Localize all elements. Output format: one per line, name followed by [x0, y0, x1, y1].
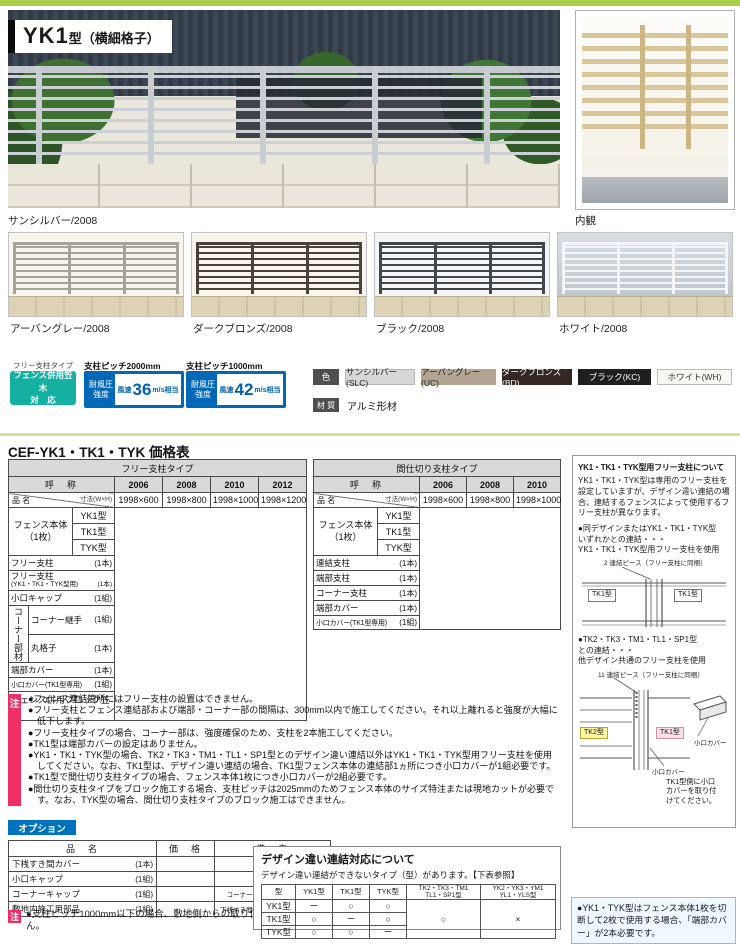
product-title: YK1型（横細格子） — [8, 20, 172, 53]
options-badge: オプション — [8, 820, 76, 835]
model-row-tyk: TYK型 — [73, 540, 115, 556]
option-row-corner-cap: コーナーキャップ(1組) — [9, 887, 157, 902]
design-subtitle: デザイン違い連結ができないタイプ（型）があります。【下表参照】 — [261, 869, 553, 881]
design-compatibility-panel: デザイン違い連結対応について デザイン違い連結ができないタイプ（型）があります。… — [253, 846, 561, 930]
hero-block-wall — [8, 164, 560, 208]
option-price-cell — [157, 857, 215, 872]
note-item: ●フェンス連結箇所にはフリー支柱の設置はできません。 — [28, 694, 560, 705]
hero-fence-top-rail — [8, 66, 560, 73]
wind-strength-label: 耐風圧 強度 — [189, 374, 217, 405]
kasagi-support-badge: フェンス併用笠木 対 応 — [10, 371, 76, 405]
row-free-post: フリー支柱(1本) — [9, 556, 115, 571]
design-cell: ○ — [333, 926, 370, 939]
note-item: ●フリー支柱タイプの場合、コーナー部は、強度確保のため、支柱を2本施工してくださ… — [28, 728, 560, 739]
partition-post-price-table: 間仕切り支柱タイプ 呼 称 2006 2008 2010 寸法(W×H) 品 名… — [313, 459, 561, 630]
design-row-label: TYK型 — [262, 926, 296, 939]
item-name: コーナー継手 — [31, 614, 82, 626]
price-empty-area — [420, 508, 561, 630]
diagram1-callout: 2 連結ピース（フリー支柱に同梱） — [604, 557, 707, 567]
note-item: ●TK1型は端部カバーの設定はありません。 — [28, 739, 560, 750]
sidebar-bullet-other-design: ●TK2・TK3・TM1・TL1・SP1型 との連結・・・ 他デザイン共通のフリ… — [578, 635, 730, 666]
material-value: アルミ形材 — [347, 398, 397, 413]
design-title: デザイン違い連結対応について — [261, 851, 553, 867]
wind-strength-label: 耐風圧 強度 — [87, 374, 115, 405]
design-compatibility-table: 型 YK1型 TK1型 TYK型 TK2・TK3・TM1 TL1・SP1型 YK… — [261, 884, 556, 939]
item-name: 小口キャップ — [12, 873, 63, 885]
note-item: ●YK1・TK1・TYK型の場合、TK2・TK3・TM1・TL1・SP1型とのデ… — [28, 750, 560, 772]
product-model-suffix: 型（横細格子） — [69, 28, 160, 47]
row-end-cover: 端部カバー(1本) — [314, 601, 420, 616]
diagonal-header-cell: 寸法(W×H) 品 名 — [9, 493, 115, 508]
item-qty: (1組) — [135, 889, 153, 900]
interior-fence-slats — [582, 33, 728, 137]
wind-unit: m/s相当 — [254, 385, 280, 395]
color-chip-sun-silver: サンシルバー(SLC) — [345, 369, 415, 385]
year-header: 2006 — [115, 477, 163, 493]
sidebar-bullet-same-design: ●同デザインまたはYK1・TK1・TYK型 いずれかとの連結・・・ YK1・TK… — [578, 524, 730, 555]
wind-prefix: 風速 — [220, 385, 234, 395]
size-cell: 1998×600 — [420, 493, 467, 508]
material-row-label: 材 質 — [313, 398, 339, 412]
options-header-price: 価 格 — [157, 841, 215, 857]
free-post-info-panel: YK1・TK1・TYK型用フリー支柱について YK1・TK1・TYK型は専用のフ… — [572, 455, 736, 828]
design-header: TK1型 — [333, 885, 370, 900]
design-merged-ng: × — [481, 900, 556, 939]
diagram2-cover-label-right: 小口カバー — [694, 737, 727, 747]
design-cell: ○ — [333, 900, 370, 913]
item-qty: (1組) — [94, 679, 112, 690]
option-row-end-cap: 小口キャップ(1組) — [9, 872, 157, 887]
cut-use-footnote: ●YK1・TYK型はフェンス本体1枚を切断して2枚で使用する場合、「端部カバー」… — [571, 897, 736, 944]
diagram2-drawing — [578, 678, 730, 774]
option-price-cell — [157, 887, 215, 902]
year-header: 2010 — [514, 477, 561, 493]
wind-prefix: 風速 — [118, 385, 132, 395]
item-qty: (1組) — [94, 614, 112, 625]
hero-fence-rails — [8, 75, 560, 159]
size-cell: 1998×800 — [163, 493, 211, 508]
row-corner-post: コーナー支柱(1本) — [314, 586, 420, 601]
item-name: コーナーキャップ — [12, 888, 80, 900]
variant-photo — [8, 232, 184, 317]
free-post-price-table: フリー支柱タイプ 呼 称 2006 2008 2010 2012 寸法(W×H)… — [8, 459, 307, 721]
wind-unit: m/s相当 — [152, 385, 178, 395]
diagram1-label: 連結ピース（フリー支柱に同梱） — [609, 560, 706, 567]
design-header: 型 — [262, 885, 296, 900]
row-round-lattice: 丸格子(1本) — [29, 634, 115, 663]
color-chip-white: ホワイト(WH) — [657, 369, 732, 385]
variant-caption: ブラック/2008 — [376, 321, 444, 336]
design-cell: ○ — [370, 913, 407, 926]
variant-photo — [557, 232, 733, 317]
corner-parts-vertical-label: コーナー部材 — [9, 606, 29, 663]
interior-view-photo — [575, 10, 735, 210]
section-divider — [0, 433, 740, 436]
design-row-label: YK1型 — [262, 900, 296, 913]
model-row-tyk: TYK型 — [378, 540, 420, 556]
design-merged-ok: ○ — [407, 900, 481, 939]
notes-badge: 注 — [8, 694, 21, 710]
connection-diagram-2: 11 連結ピース（フリー支柱に同梱） TK2型 TK1型 小口カバー 小口カバー — [578, 669, 730, 811]
variant-black: ブラック/2008 — [374, 232, 550, 317]
wind-value: 36 — [133, 381, 152, 398]
price-section-title: CEF-YK1・TK1・TYK 価格表 — [8, 441, 190, 461]
fence-body-label: フェンス本体 （1枚） — [9, 508, 73, 556]
color-chip-dark-bronze: ダークブロンズ(BD) — [502, 369, 572, 385]
row-kuchi-cover: 小口カバー(TK1型専用)(1組) — [314, 616, 420, 630]
item-qty: (1本) — [399, 588, 417, 599]
model-row-tk1: TK1型 — [378, 524, 420, 540]
item-name: 下桟すき間カバー — [12, 858, 80, 870]
price-empty-area — [115, 508, 307, 721]
hero-fence-post — [36, 66, 42, 170]
note-item: ●フリー支柱とフェンス連結部および端部・コーナー部の間隔は、300mm以内で施工… — [28, 705, 560, 727]
variant-caption: ホワイト/2008 — [559, 321, 627, 336]
sidebar-body: YK1・TK1・TYK型は専用のフリー支柱を設定していますが、デザイン違い連結の… — [578, 476, 730, 519]
variant-dark-bronze: ダークブロンズ/2008 — [191, 232, 367, 317]
hero-photo: YK1型（横細格子） — [8, 10, 560, 208]
row-free-post-dedicated: フリー支柱 (YK1・TK1・TYK型用)(1本) — [9, 571, 115, 591]
diagram2-cover-label-left: 小口カバー — [652, 766, 685, 776]
year-header: 2008 — [467, 477, 514, 493]
variant-caption: ダークブロンズ/2008 — [193, 321, 293, 336]
wind-value-box: 風速 36 m/s相当 — [115, 374, 181, 405]
hero-fence-post — [484, 66, 490, 170]
variant-urban-gray: アーバングレー/2008 — [8, 232, 184, 317]
interior-base — [582, 167, 728, 177]
item-qty: (1本) — [98, 581, 112, 589]
design-header: YK2・YK3・YM1 YL1・YLS型 — [481, 885, 556, 900]
note-item: ●間仕切り支柱タイプをブロック施工する場合、支柱ピッチは2025mmのためフェン… — [28, 784, 560, 806]
item-name: 小口カバー(TK1型専用) — [316, 618, 387, 628]
row-end-post: 端部支柱(1本) — [314, 571, 420, 586]
top-green-bar — [0, 0, 740, 6]
design-cell: ー — [296, 900, 333, 913]
design-cell: ○ — [370, 900, 407, 913]
table-type-header: 間仕切り支柱タイプ — [314, 460, 561, 477]
item-name: コーナー支柱 — [316, 587, 367, 599]
design-row-label: TK1型 — [262, 913, 296, 926]
diagram1-number: 2 — [604, 560, 608, 567]
item-qty: (1本) — [399, 603, 417, 614]
size-cell: 1998×800 — [467, 493, 514, 508]
item-qty: (1本) — [94, 643, 112, 654]
item-qty: (1組) — [94, 593, 112, 604]
item-name: 小口カバー(TK1型専用) — [11, 680, 82, 690]
diagram1-left-model-tag: TK1型 — [588, 589, 616, 602]
item-qty: (1本) — [94, 558, 112, 569]
row-end-cover: 端部カバー(1本) — [9, 663, 115, 678]
year-header: 2008 — [163, 477, 211, 493]
option-row-gap-cover: 下桟すき間カバー(1本) — [9, 857, 157, 872]
color-row-label: 色 — [313, 369, 339, 385]
model-row-tk1: TK1型 — [73, 524, 115, 540]
interior-fence-post — [686, 25, 691, 149]
variant-white: ホワイト/2008 — [557, 232, 733, 317]
color-chip-urban-gray: アーバングレー(UC) — [421, 369, 496, 385]
item-name: 小口キャップ — [11, 592, 62, 604]
item-qty: (1本) — [399, 558, 417, 569]
interior-photo-caption: 内観 — [575, 213, 596, 228]
row-link-post: 連結支柱(1本) — [314, 556, 420, 571]
wind-resistance-badge-36: 耐風圧 強度 風速 36 m/s相当 — [84, 371, 184, 408]
model-row-yk1: YK1型 — [73, 508, 115, 524]
wind-resistance-badge-42: 耐風圧 強度 風速 42 m/s相当 — [186, 371, 286, 408]
variant-caption: アーバングレー/2008 — [10, 321, 110, 336]
item-axis-label: 品 名 — [317, 495, 335, 506]
fence-body-label: フェンス本体 （1枚） — [314, 508, 378, 556]
row-corner-joint: コーナー継手(1組) — [29, 606, 115, 635]
item-qty: (1本) — [135, 859, 153, 870]
size-cell: 1998×1000 — [211, 493, 259, 508]
notes-list: ●フェンス連結箇所にはフリー支柱の設置はできません。 ●フリー支柱とフェンス連結… — [28, 694, 560, 806]
interior-view-art — [582, 17, 728, 203]
size-cell: 1998×600 — [115, 493, 163, 508]
diagonal-header-cell: 寸法(W×H) 品 名 — [314, 493, 420, 508]
item-qty: (1組) — [399, 617, 417, 628]
hero-fence — [8, 66, 560, 170]
sidebar-title: YK1・TK1・TYK型用フリー支柱について — [578, 462, 730, 473]
color-chip-black: ブラック(KC) — [578, 369, 651, 385]
options-header-name: 品 名 — [9, 841, 157, 857]
design-cell: ー — [370, 926, 407, 939]
color-chip-row: サンシルバー(SLC) アーバングレー(UC) ダークブロンズ(BD) ブラック… — [345, 369, 732, 385]
item-qty: (1組) — [135, 874, 153, 885]
connection-diagram-1: 2 連結ピース（フリー支柱に同梱） TK1型 TK1型 — [578, 557, 730, 635]
variant-photo — [374, 232, 550, 317]
name-header: 呼 称 — [314, 477, 420, 493]
notes-red-bar: 注 — [8, 694, 21, 806]
item-name: 端部支柱 — [316, 572, 350, 584]
interior-ground — [582, 177, 728, 203]
interior-fence-post — [640, 25, 645, 149]
item-axis-label: 品 名 — [12, 495, 30, 506]
size-axis-label: 寸法(W×H) — [80, 493, 112, 503]
year-header: 2010 — [211, 477, 259, 493]
diagram1-right-model-tag: TK1型 — [674, 589, 702, 602]
hero-row: YK1型（横細格子） サンシルバー/2008 内観 — [8, 10, 732, 230]
options-note-badge: 注 — [8, 910, 21, 923]
note-item: ●TK1型で間仕切り支柱タイプの場合、フェンス本体1枚につき小口カバーが2組必要… — [28, 772, 560, 783]
item-name: 連結支柱 — [316, 557, 350, 569]
item-name: 端部カバー — [11, 664, 54, 676]
size-cell: 1998×1200 — [259, 493, 307, 508]
wind-value-box: 風速 42 m/s相当 — [217, 374, 283, 405]
design-header: YK1型 — [296, 885, 333, 900]
size-axis-label: 寸法(W×H) — [385, 493, 417, 503]
row-kuchi-cover: 小口カバー(TK1型専用)(1組) — [9, 678, 115, 692]
hero-fence-post — [372, 66, 378, 170]
product-model: YK1 — [23, 23, 69, 49]
hero-fence-post — [260, 66, 266, 170]
name-header: 呼 称 — [9, 477, 115, 493]
year-header: 2012 — [259, 477, 307, 493]
variant-photo — [191, 232, 367, 317]
item-name: フリー支柱 — [11, 557, 54, 569]
hero-fence-post — [148, 66, 154, 170]
design-cell: ○ — [296, 913, 333, 926]
diagram2-note: TK1型側に小口 カバーを取り付 けてください。 — [666, 777, 730, 806]
notes-section: 注 ●フェンス連結箇所にはフリー支柱の設置はできません。 ●フリー支柱とフェンス… — [8, 694, 560, 806]
item-qty: (1本) — [399, 573, 417, 584]
option-price-cell — [157, 872, 215, 887]
item-subname: (YK1・TK1・TYK型用) — [11, 581, 78, 589]
year-header: 2006 — [420, 477, 467, 493]
table-type-header: フリー支柱タイプ — [9, 460, 307, 477]
item-qty: (1本) — [94, 665, 112, 676]
diagram2-right-model-tag: TK1型 — [656, 727, 684, 740]
diagram2-left-model-tag: TK2型 — [580, 727, 608, 740]
design-cell: ー — [333, 913, 370, 926]
hero-photo-caption: サンシルバー/2008 — [8, 213, 97, 228]
item-name: フリー支柱 — [11, 572, 112, 581]
model-row-yk1: YK1型 — [378, 508, 420, 524]
size-cell: 1998×1000 — [514, 493, 561, 508]
design-header: TYK型 — [370, 885, 407, 900]
design-cell: ○ — [296, 926, 333, 939]
row-end-cap: 小口キャップ(1組) — [9, 591, 115, 606]
design-header: TK2・TK3・TM1 TL1・SP1型 — [407, 885, 481, 900]
item-name: 丸格子 — [31, 642, 57, 654]
wind-value: 42 — [235, 381, 254, 398]
spec-strip: フリー支柱タイプ フェンス併用笠木 対 応 支柱ピッチ2000mm 耐風圧 強度… — [0, 352, 740, 432]
item-name: 端部カバー — [316, 602, 359, 614]
